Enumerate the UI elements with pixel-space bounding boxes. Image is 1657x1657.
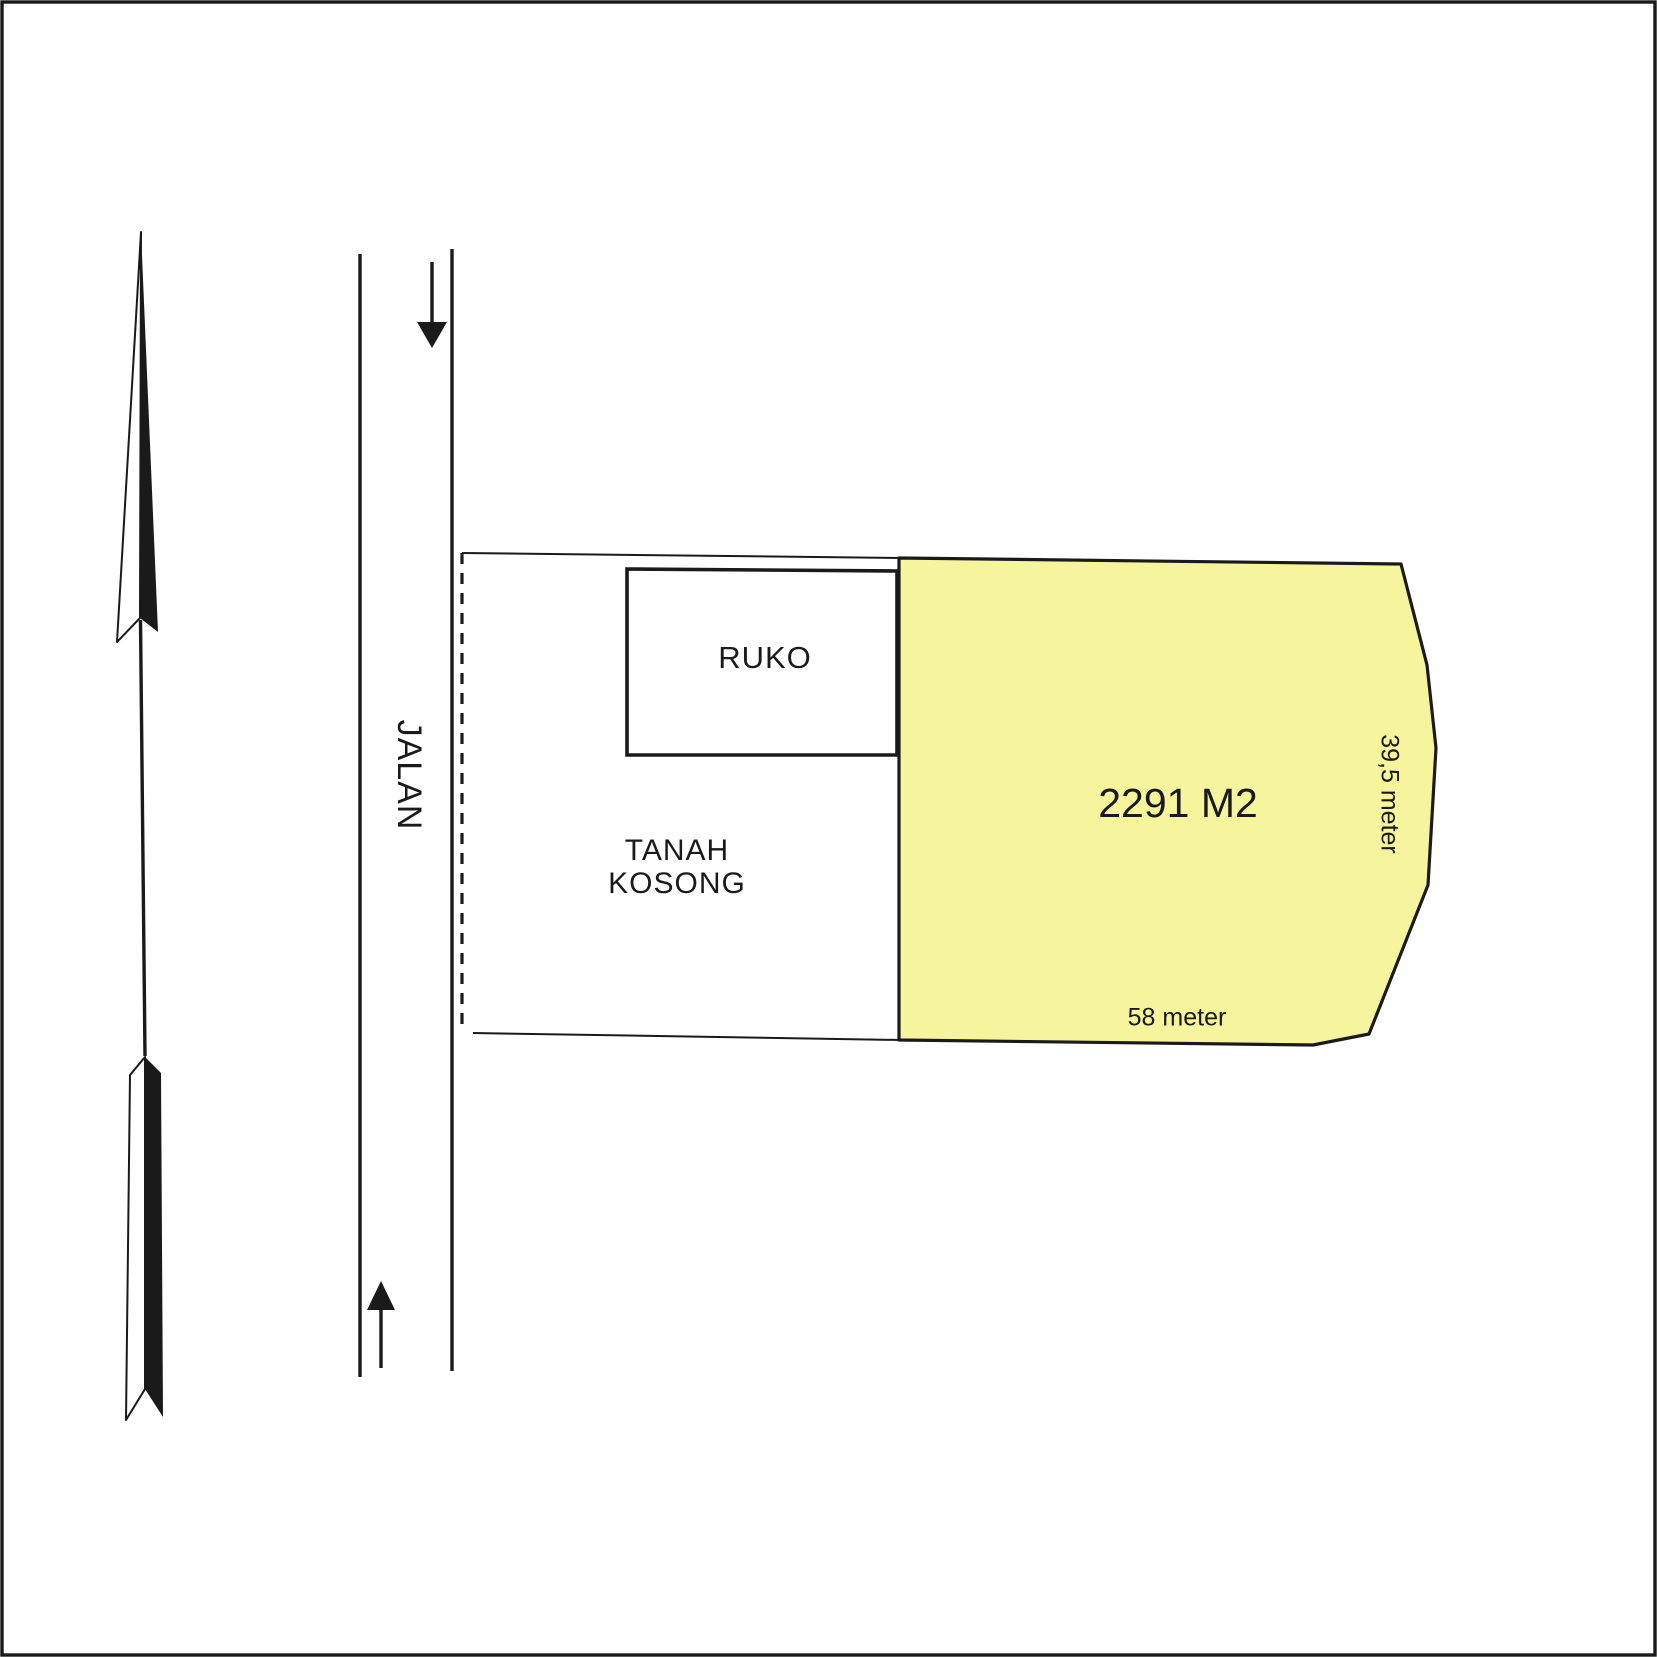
vacant-land-label-line1: TANAH [625,834,729,867]
road: JALAN [360,249,452,1377]
north-arrow-fletch-black-half [145,1057,163,1417]
north-arrow-shaft [141,620,146,1056]
traffic-up-arrow-icon [367,1281,395,1368]
road-label: JALAN [390,720,428,831]
land-plot: RUKO TANAH KOSONG 2291 M2 58 meter 39,5 … [462,553,1436,1045]
ruko-label: RUKO [718,640,812,675]
vacant-land-label: TANAH KOSONG [608,834,746,900]
parcel-bottom-dimension: 58 meter [1128,1004,1227,1032]
plot-top-edge [462,553,901,558]
north-arrow [117,232,163,1420]
plot-bottom-edge [473,1033,901,1040]
north-arrow-spear-white-half [117,232,141,642]
north-arrow-spear-black-half [140,232,158,632]
down-arrow-head [417,322,447,348]
site-plan-drawing: JALAN RUKO TANAH KOSONG 2291 M2 58 meter… [0,0,1657,1657]
parcel-right-dimension: 39,5 meter [1375,734,1403,854]
vacant-land-label-line2: KOSONG [608,867,746,900]
up-arrow-head [367,1281,395,1310]
traffic-down-arrow-icon [417,262,447,348]
north-arrow-fletch-white-half [126,1057,145,1420]
parcel-area-label: 2291 M2 [1098,780,1258,826]
site-plan-sketch: JALAN RUKO TANAH KOSONG 2291 M2 58 meter… [0,0,1657,1657]
